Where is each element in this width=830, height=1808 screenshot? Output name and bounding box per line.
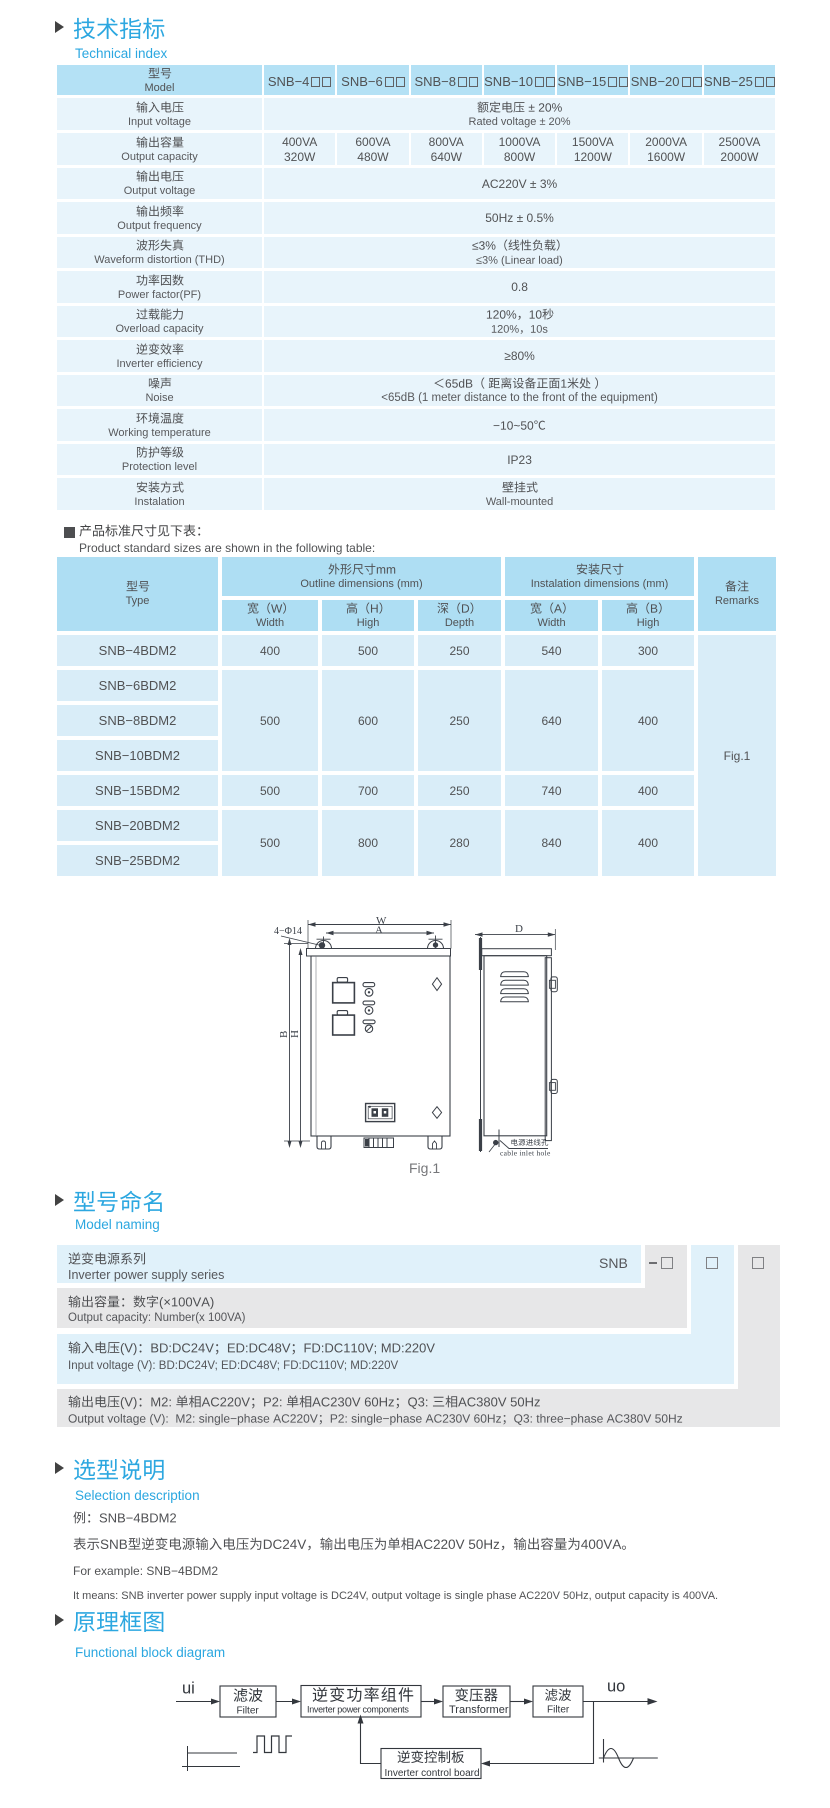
svg-text:Filter: Filter xyxy=(547,1705,570,1716)
svg-text:ui: ui xyxy=(182,1680,195,1698)
svg-text:cable inlet hole: cable inlet hole xyxy=(500,1149,551,1158)
svg-text:A: A xyxy=(375,925,383,937)
svg-text:uo: uo xyxy=(607,1678,625,1696)
svg-text:4−Φ14: 4−Φ14 xyxy=(274,926,302,937)
svg-text:H: H xyxy=(289,1030,301,1038)
svg-text:Fig.1: Fig.1 xyxy=(409,1160,440,1176)
svg-text:Filter: Filter xyxy=(237,1706,260,1717)
svg-text:Inverter power components: Inverter power components xyxy=(307,1705,409,1715)
svg-text:Inverter control board: Inverter control board xyxy=(385,1768,480,1779)
svg-text:Transformer: Transformer xyxy=(449,1704,509,1716)
svg-text:D: D xyxy=(515,923,523,935)
